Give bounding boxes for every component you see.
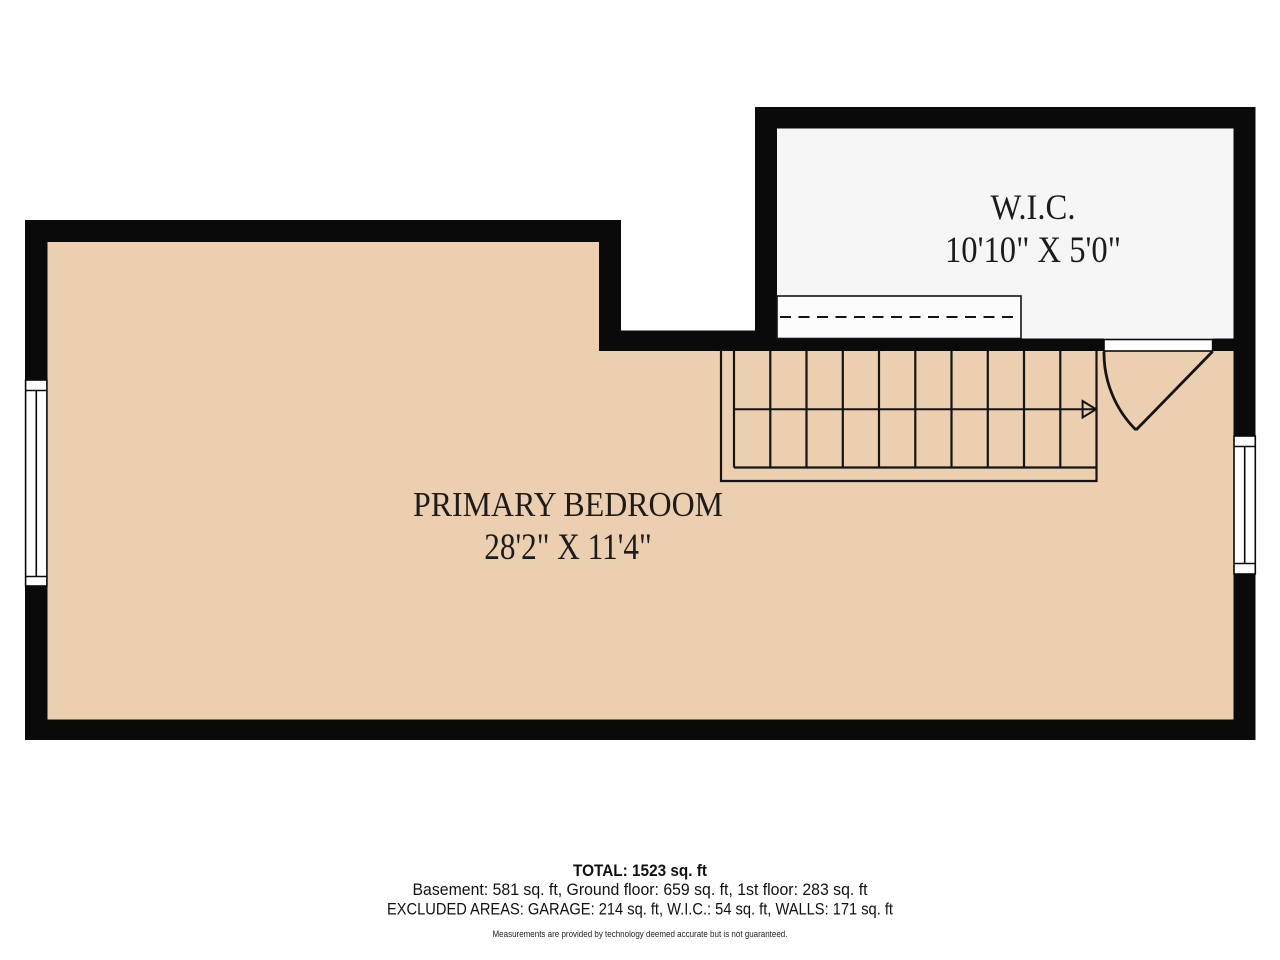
svg-text:28'2" X 11'4": 28'2" X 11'4" xyxy=(484,527,652,568)
svg-text:10'10" X 5'0": 10'10" X 5'0" xyxy=(945,230,1121,271)
svg-text:EXCLUDED AREAS: GARAGE: 214 sq: EXCLUDED AREAS: GARAGE: 214 sq. ft, W.I.… xyxy=(387,900,893,919)
svg-text:TOTAL: 1523 sq. ft: TOTAL: 1523 sq. ft xyxy=(573,861,707,880)
svg-text:W.I.C.: W.I.C. xyxy=(991,187,1076,227)
svg-text:PRIMARY BEDROOM: PRIMARY BEDROOM xyxy=(413,485,723,524)
svg-text:Basement: 581 sq. ft, Ground f: Basement: 581 sq. ft, Ground floor: 659 … xyxy=(413,880,868,899)
svg-text:Measurements are provided by t: Measurements are provided by technology … xyxy=(493,929,788,939)
